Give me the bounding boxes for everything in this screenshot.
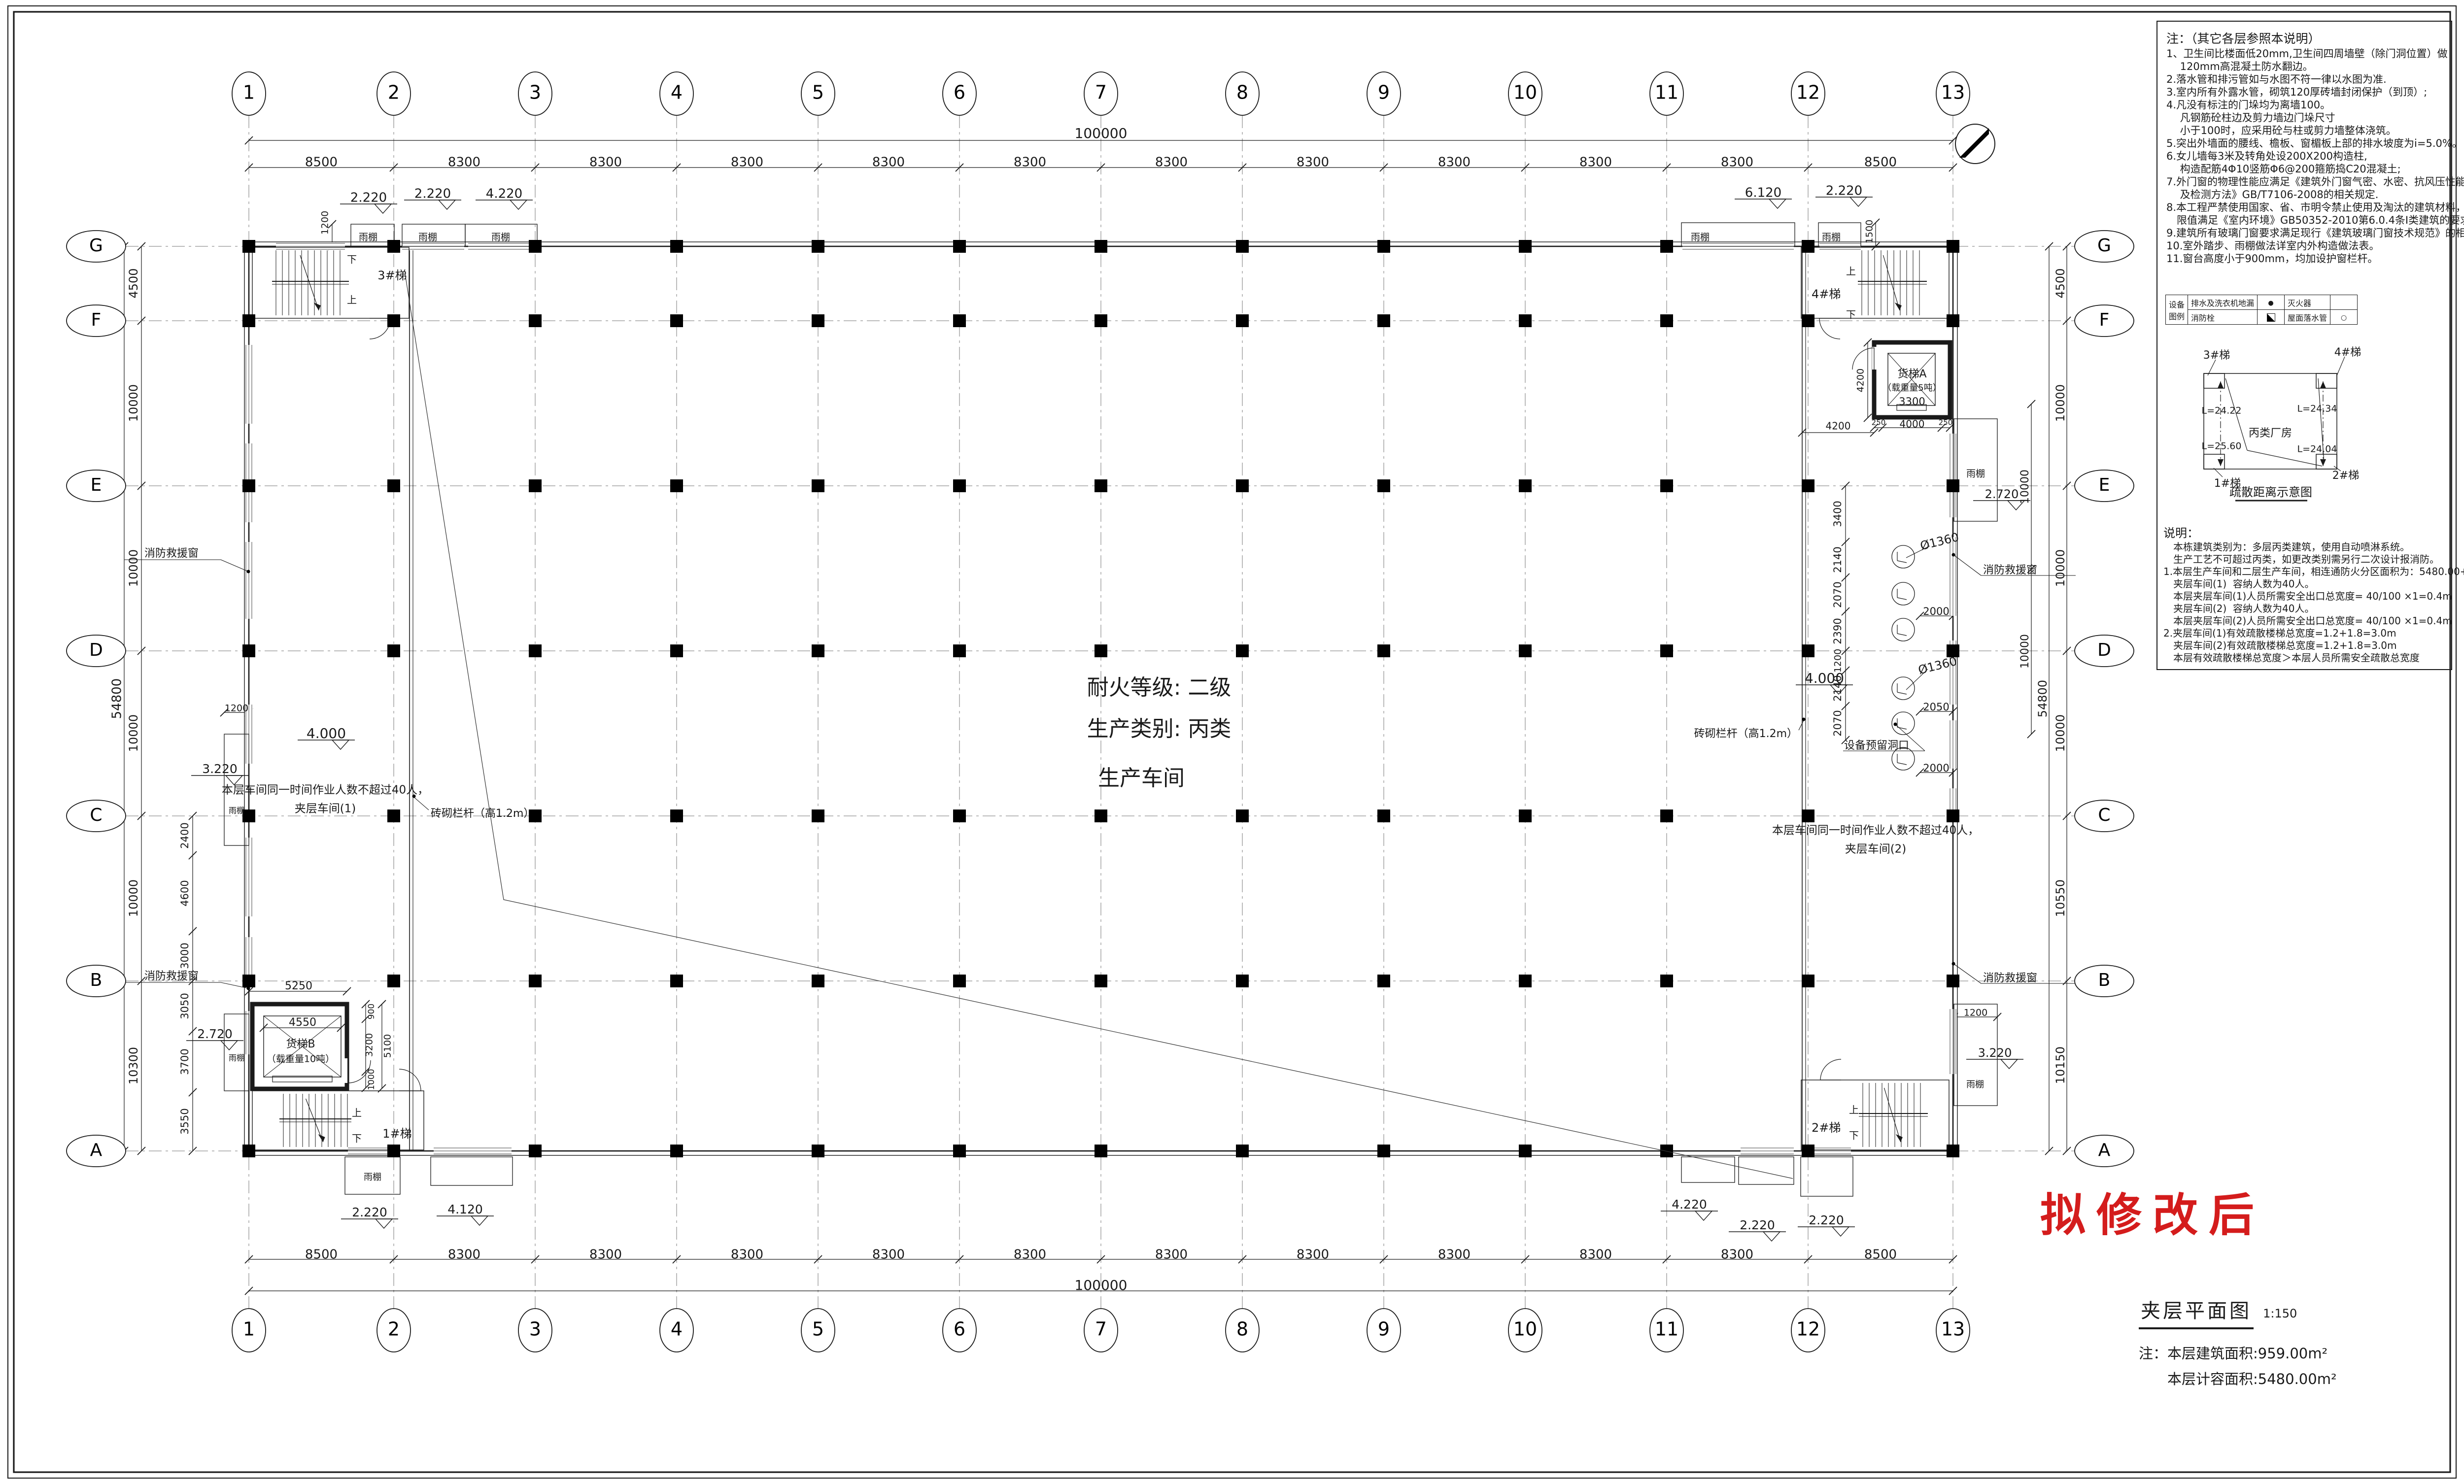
- grid-bubble-label: E: [2099, 475, 2110, 495]
- plan-label: 2070: [1832, 710, 1844, 736]
- floor-plan-canvas: 1122334455667788991010111112121313GGFFEE…: [0, 0, 2464, 1484]
- plan-label: 8300: [731, 155, 763, 170]
- column: [670, 644, 683, 657]
- plan-label: 8300: [1579, 1248, 1612, 1262]
- leader-dot: [247, 987, 250, 990]
- column: [1947, 314, 1959, 327]
- column: [953, 240, 966, 253]
- column: [1660, 975, 1673, 987]
- column: [1802, 1145, 1814, 1157]
- column: [242, 479, 255, 492]
- column: [242, 975, 255, 987]
- column: [670, 975, 683, 987]
- column: [387, 975, 400, 987]
- plan-label: 消防救援窗: [144, 970, 199, 982]
- column: [1377, 314, 1390, 327]
- plan-label: 3.220: [202, 762, 238, 776]
- plan-label: 6.120: [1745, 186, 1781, 201]
- column: [1802, 240, 1814, 253]
- level-icon: [1832, 1227, 1849, 1236]
- plan-label: 900: [367, 1004, 376, 1019]
- plan-rect: [1801, 1080, 1949, 1150]
- cad-sheet: 1122334455667788991010111112121313GGFFEE…: [0, 0, 2464, 1484]
- description-title: 说明：: [2163, 525, 2447, 541]
- column: [1095, 975, 1107, 987]
- plan-label: 4.000: [1805, 670, 1844, 686]
- grid-bubble-label: 9: [1378, 82, 1390, 103]
- plan-label: 8300: [1721, 155, 1753, 170]
- grid-bubble-label: 6: [954, 1318, 965, 1340]
- plan-line: [300, 255, 319, 310]
- plan-label: 8300: [448, 1248, 480, 1262]
- column: [1095, 809, 1107, 822]
- plan-label: 8300: [1155, 155, 1188, 170]
- plan-label: 10000: [2019, 634, 2031, 669]
- plan-label: 8300: [1721, 1248, 1753, 1262]
- door-arc: [1820, 1059, 1841, 1080]
- plan-label: 4500: [127, 268, 140, 298]
- plan-label: 4500: [2053, 268, 2067, 298]
- stair-arrow-icon: [314, 303, 321, 310]
- leader-dot: [1952, 962, 1955, 966]
- column: [1519, 975, 1532, 987]
- plan-label: 雨棚: [491, 232, 510, 243]
- door-arc: [1852, 348, 1874, 370]
- plan-label: 8300: [1579, 155, 1612, 170]
- column: [953, 809, 966, 822]
- note-line: 凡钢筋砼柱边及剪力墙边门垛尺寸: [2166, 111, 2446, 124]
- plan-label: 10000: [2053, 384, 2067, 422]
- plan-label: 8300: [872, 1248, 905, 1262]
- leader-dot: [1952, 553, 1955, 557]
- plan-label: 4.220: [486, 187, 522, 202]
- column: [953, 314, 966, 327]
- plan-label: 8300: [1438, 1248, 1471, 1262]
- column: [1236, 1145, 1249, 1157]
- plan-label: 货梯B: [286, 1038, 315, 1050]
- stair-arrow-icon: [1895, 303, 1902, 310]
- desc-line: 夹层车间(2) 容纳人数为40人。: [2163, 603, 2447, 615]
- plan-label: 1500: [1864, 220, 1875, 243]
- column: [387, 479, 400, 492]
- column: [670, 240, 683, 253]
- plan-label: 雨棚: [229, 1053, 244, 1063]
- column: [1377, 240, 1390, 253]
- column: [1802, 975, 1814, 987]
- plan-label: 本层车间同一时间作业人数不超过40人，: [222, 784, 429, 797]
- column: [242, 1145, 255, 1157]
- note-line: 120mm高混凝土防水翻边。: [2166, 60, 2446, 73]
- plan-label: 5100: [382, 1034, 393, 1058]
- column: [1095, 314, 1107, 327]
- plan-label: 100000: [1075, 1277, 1128, 1293]
- note-line: 8.本工程严禁使用国家、省、市明令禁止使用及淘汰的建筑材料，室内污染: [2166, 201, 2446, 214]
- leader-dot: [247, 570, 250, 573]
- plan-label: 10550: [2053, 879, 2067, 917]
- plan-label: 10000: [2053, 714, 2067, 752]
- plan-label: 8300: [1438, 155, 1471, 170]
- grid-bubble-label: 3: [529, 82, 541, 103]
- grid-bubble-label: 2: [388, 82, 400, 103]
- plan-label: 2.220: [352, 1205, 387, 1219]
- grid-bubble-label: B: [90, 970, 103, 990]
- grid-bubble-label: 5: [812, 82, 824, 103]
- column: [1519, 314, 1532, 327]
- plan-line: [1897, 692, 1907, 694]
- door-arc: [370, 318, 390, 339]
- plan-label: 4.120: [447, 1202, 483, 1216]
- column: [1236, 240, 1249, 253]
- plan-label: 下: [352, 1133, 362, 1145]
- grid-bubble-label: 7: [1095, 82, 1107, 103]
- leader-dot: [1802, 718, 1806, 721]
- desc-line: 2.夹层车间(1)有效疏散楼梯总宽度=1.2+1.8=3.0m: [2163, 627, 2447, 640]
- plan-label: 4200: [1826, 420, 1851, 432]
- plan-label: 2.720: [1985, 487, 2019, 501]
- plan-rect: [1801, 1157, 1853, 1196]
- area-note-2: 本层计容面积:5480.00m²: [2167, 1368, 2454, 1388]
- column: [670, 479, 683, 492]
- plan-label: 生产车间: [1098, 766, 1185, 791]
- grid-bubble-label: 10: [1513, 1318, 1537, 1340]
- plan-line: [1897, 763, 1907, 765]
- column: [387, 1145, 400, 1157]
- note-line: 9.建筑所有玻璃门窗要求满足现行《建筑玻璃门窗技术规范》的相关要求。: [2166, 227, 2446, 239]
- plan-label: 上: [1849, 1104, 1859, 1116]
- column: [1802, 479, 1814, 492]
- plan-label: 夹层车间(2): [1845, 843, 1907, 856]
- level-icon: [471, 1216, 488, 1225]
- plan-rect: [1681, 1157, 1735, 1182]
- plan-label: 10000: [2053, 549, 2067, 587]
- plan-label: 3400: [1832, 501, 1844, 527]
- level-icon: [1769, 199, 1786, 208]
- column: [529, 314, 542, 327]
- plan-label: 8300: [731, 1248, 763, 1262]
- plan-label: 3050: [179, 993, 191, 1019]
- legend-cell: 屋面落水管: [2285, 310, 2330, 325]
- plan-label: 2.220: [414, 187, 451, 202]
- downpipe-icon: ○: [2341, 314, 2347, 322]
- level-icon: [439, 200, 455, 209]
- elevator-door-gap: [343, 1058, 347, 1083]
- plan-label: 8500: [305, 1248, 338, 1262]
- grid-bubble-label: 8: [1236, 82, 1248, 103]
- plan-label: 3#梯: [377, 269, 407, 282]
- plan-label: 2140: [1832, 546, 1844, 573]
- legend-cell: 灭火器: [2285, 295, 2330, 310]
- column: [529, 644, 542, 657]
- column: [1519, 809, 1532, 822]
- plan-line: [1799, 720, 1804, 730]
- plan-label: 100000: [1075, 125, 1128, 141]
- plan-label: 货梯A: [1897, 368, 1926, 380]
- column: [1236, 809, 1249, 822]
- column: [1519, 479, 1532, 492]
- plan-label: 4#梯: [1812, 287, 1841, 301]
- plan-label: 1200: [320, 211, 331, 235]
- plan-label: 2.720: [197, 1027, 233, 1041]
- plan-label: 3.220: [1978, 1046, 2012, 1060]
- column: [1236, 314, 1249, 327]
- plan-label: 8300: [448, 155, 480, 170]
- plan-label: 4.000: [307, 725, 346, 742]
- plan-label: 上: [347, 294, 357, 306]
- level-icon: [510, 200, 527, 209]
- column: [1660, 479, 1673, 492]
- column: [1377, 644, 1390, 657]
- plan-label: 2070: [1832, 581, 1844, 607]
- plan-label: 雨棚: [1822, 232, 1841, 243]
- desc-line: 本层有效疏散楼梯总宽度＞本层人员所需安全疏散总宽度: [2163, 652, 2447, 664]
- plan-label: 设备预留洞口: [1844, 740, 1909, 752]
- column: [953, 1145, 966, 1157]
- grid-bubble-label: G: [89, 236, 103, 256]
- column: [812, 479, 824, 492]
- plan-label: 54800: [110, 678, 125, 719]
- column: [812, 240, 824, 253]
- desc-line: 本层夹层车间(1)人员所需安全出口总宽度= 40/100 ×1=0.4m: [2163, 590, 2447, 603]
- reserved-opening-icon: [1892, 618, 1915, 641]
- plan-label: 上: [352, 1107, 362, 1119]
- plan-rect: [14, 12, 2450, 1472]
- plan-label: 1200: [225, 703, 248, 714]
- plan-label: 8300: [1297, 155, 1329, 170]
- grid-bubble-label: 1: [243, 82, 255, 103]
- plan-label: 2000: [1923, 606, 1949, 617]
- description-list: 本栋建筑类别为：多层丙类建筑，使用自动喷淋系统。 生产工艺不可超过丙类，如更改类…: [2163, 541, 2447, 664]
- plan-label: 雨棚: [359, 232, 377, 243]
- grid-bubble-label: 4: [671, 1318, 683, 1340]
- grid-bubble-label: 3: [529, 1318, 541, 1340]
- plan-line: [414, 797, 429, 810]
- level-icon: [376, 1219, 392, 1228]
- plan-label: 4550: [289, 1016, 316, 1029]
- reserved-opening-icon: [1892, 677, 1915, 700]
- column: [1377, 975, 1390, 987]
- plan-line: [1884, 1088, 1900, 1142]
- grid-bubble-label: B: [2098, 970, 2111, 990]
- grid-bubble-label: 11: [1655, 82, 1678, 103]
- column: [670, 809, 683, 822]
- column: [1095, 240, 1107, 253]
- plan-label: 250: [1872, 418, 1886, 427]
- note-line: 4.凡没有标注的门垛均为离墙100。: [2166, 99, 2446, 111]
- plan-line: [1897, 561, 1907, 563]
- column: [387, 314, 400, 327]
- sheet-scale: 1:150: [2263, 1307, 2297, 1320]
- legend-cell: 排水及洗衣机地漏: [2188, 295, 2258, 310]
- description-block: 说明： 本栋建筑类别为：多层丙类建筑，使用自动喷淋系统。 生产工艺不可超过丙类，…: [2163, 525, 2447, 664]
- plan-label: 2.220: [1826, 184, 1862, 199]
- column: [812, 975, 824, 987]
- plan-label: 2390: [1832, 618, 1844, 644]
- grid-bubble-label: C: [2098, 805, 2110, 825]
- plan-label: 雨棚: [1966, 1079, 1984, 1090]
- plan-label: 10300: [127, 1047, 140, 1084]
- plan-label: 10000: [127, 549, 140, 587]
- reserved-opening-icon: [1892, 545, 1915, 568]
- plan-label: 8300: [589, 1248, 622, 1262]
- plan-label: 夹层车间(1): [295, 803, 356, 815]
- column: [529, 975, 542, 987]
- red-stamp: 拟修改后: [2040, 1179, 2265, 1244]
- plan-line: [1897, 634, 1907, 636]
- level-icon: [1763, 1232, 1780, 1241]
- plan-label: 3300: [1899, 396, 1925, 407]
- plan-label: 消防救援窗: [1983, 972, 2037, 984]
- plan-rect: [1739, 1157, 1794, 1184]
- plan-label: 雨棚: [418, 232, 437, 243]
- grid-bubble-label: 10: [1513, 82, 1537, 103]
- column: [1519, 1145, 1532, 1157]
- level-icon: [1695, 1211, 1712, 1220]
- column: [812, 809, 824, 822]
- column: [953, 644, 966, 657]
- column: [242, 240, 255, 253]
- plan-label: 2400: [179, 822, 191, 848]
- grid-bubble-label: 13: [1941, 1318, 1965, 1340]
- note-line: 2.落水管和排污管如与水图不符一律以水图为准.: [2166, 73, 2446, 86]
- plan-label: 下: [1849, 1130, 1859, 1142]
- plan-label: 5250: [285, 980, 312, 992]
- door-arc: [1819, 318, 1840, 339]
- note-line: 小于100时，应采用砼与柱或剪力墙整体浇筑。: [2166, 124, 2446, 137]
- plan-label: 10000: [2019, 470, 2031, 504]
- note-line: 限值满足《室内环境》GB50352-2010第6.0.4条I类建筑的要求.: [2166, 214, 2446, 227]
- desc-line: 本栋建筑类别为：多层丙类建筑，使用自动喷淋系统。: [2163, 541, 2447, 553]
- note-line: 5.突出外墙面的腰线、檐板、窗楣板上部的排水坡度为i=5.0%。: [2166, 137, 2446, 150]
- fire-hydrant-icon: [2267, 313, 2275, 322]
- plan-label: 3700: [179, 1048, 191, 1075]
- column: [953, 975, 966, 987]
- column: [1377, 1145, 1390, 1157]
- column: [1095, 644, 1107, 657]
- compass-needle-icon: [1959, 128, 1989, 158]
- note-line: 1、卫生间比楼面低20mm,卫生间四周墙壁（除门洞位置）做: [2166, 47, 2446, 60]
- grid-bubble-label: 7: [1095, 1318, 1107, 1340]
- note-line: 7.外门窗的物理性能应满足《建筑外门窗气密、水密、抗风压性能分级: [2166, 175, 2446, 188]
- plan-label: 本层车间同一时间作业人数不超过40人，: [1772, 824, 1979, 837]
- floor-drain-icon: ●: [2268, 300, 2273, 307]
- plan-label: 消防救援窗: [1983, 564, 2037, 576]
- plan-label: 10000: [127, 714, 140, 752]
- column: [1947, 975, 1959, 987]
- plan-label: 8300: [1155, 1248, 1188, 1262]
- plan-label: 雨棚: [1966, 469, 1985, 479]
- plan-label: 10000: [127, 384, 140, 422]
- column: [1947, 240, 1959, 253]
- column: [1802, 809, 1814, 822]
- level-icon: [221, 1041, 238, 1050]
- level-icon: [1850, 197, 1867, 206]
- grid-bubble-label: 12: [1796, 1318, 1820, 1340]
- grid-bubble-label: 5: [812, 1318, 824, 1340]
- plan-label: 2000: [1923, 762, 1949, 774]
- column: [1519, 644, 1532, 657]
- level-icon: [375, 204, 391, 213]
- grid-bubble-label: A: [90, 1140, 103, 1160]
- plan-label: 2.220: [1740, 1218, 1775, 1232]
- plan-label: 2050: [1923, 701, 1949, 713]
- plan-rect: [252, 1091, 424, 1150]
- stair-arrow-icon: [1896, 1134, 1903, 1142]
- column: [1947, 809, 1959, 822]
- plan-label: 雨棚: [1691, 232, 1710, 243]
- legend-table: 设备 图例 排水及洗衣机地漏 ● 灭火器 消防栓 屋面落水管: [2165, 295, 2358, 325]
- plan-label: 4600: [179, 880, 191, 906]
- column: [1236, 479, 1249, 492]
- plan-label: 8500: [1864, 1248, 1897, 1262]
- area-note-1: 注：本层建筑面积:959.00m²: [2139, 1342, 2454, 1363]
- column: [529, 479, 542, 492]
- plan-label: 2.220: [1809, 1213, 1844, 1227]
- note-line: 及检测方法》GB/T7106-2008的相关规定.: [2166, 188, 2446, 201]
- legend-header: 设备: [2169, 300, 2185, 309]
- column: [529, 1145, 542, 1157]
- grid-bubble-label: 13: [1941, 82, 1965, 103]
- plan-label: 8300: [1297, 1248, 1329, 1262]
- note-line: 11.窗台高度小于900mm，均加设护窗栏杆。: [2166, 252, 2446, 265]
- plan-label: 3000: [179, 943, 191, 969]
- plan-label: 4.220: [1672, 1197, 1707, 1212]
- title-block: 夹层平面图 1:150 注：本层建筑面积:959.00m² 本层计容面积:548…: [2139, 1295, 2454, 1388]
- desc-line: 1.本层生产车间和二层生产车间，相连通防火分区面积为：5480.00+959.0…: [2163, 566, 2447, 578]
- plan-label: 1000: [367, 1069, 376, 1090]
- plan-label: 54800: [2036, 680, 2050, 717]
- grid-bubble-label: D: [2097, 640, 2111, 660]
- grid-bubble-label: 8: [1236, 1318, 1248, 1340]
- grid-bubble-label: F: [2099, 310, 2110, 330]
- plan-label: 3550: [179, 1108, 191, 1134]
- plan-label: 消防救援窗: [144, 547, 199, 560]
- column: [242, 644, 255, 657]
- legend-cell: 消防栓: [2188, 310, 2258, 325]
- column: [387, 644, 400, 657]
- plan-label: 雨棚: [364, 1172, 381, 1182]
- plan-line: [1897, 598, 1907, 600]
- column: [812, 1145, 824, 1157]
- plan-label: 2#梯: [1812, 1121, 1841, 1135]
- grid-bubble-label: 4: [671, 82, 683, 103]
- column: [1095, 1145, 1107, 1157]
- column: [1802, 314, 1814, 327]
- plan-label: 下: [1846, 309, 1856, 321]
- column: [1377, 479, 1390, 492]
- desc-line: 夹层车间(2)有效疏散楼梯总宽度=1.2+1.8=3.0m: [2163, 640, 2447, 652]
- plan-label: 下: [347, 254, 357, 266]
- leader-dot: [1894, 723, 1897, 726]
- plan-label: 生产类别: 丙类: [1087, 716, 1232, 742]
- plan-label: 砖砌栏杆（高1.2m）: [1694, 728, 1798, 740]
- door-arc: [399, 1069, 421, 1091]
- reserved-opening-icon: [1892, 582, 1915, 605]
- grid-bubble-label: 2: [388, 1318, 400, 1340]
- plan-label: 1200: [1833, 649, 1844, 673]
- plan-label: 4200: [1855, 369, 1866, 392]
- desc-line: 生产工艺不可超过丙类，如更改类别需另行二次设计报消防。: [2163, 553, 2447, 566]
- plan-label: 砖砌栏杆（高1.2m）: [431, 808, 534, 820]
- note-line: 构造配筋4Φ10竖筋Φ6@200箍筋捣C20混凝土;: [2166, 163, 2446, 175]
- plan-rect: [431, 1157, 513, 1185]
- note-line: 6.女儿墙每3米及转角处设200X200构造柱,: [2166, 150, 2446, 163]
- column: [670, 1145, 683, 1157]
- column: [953, 479, 966, 492]
- column: [1660, 644, 1673, 657]
- grid-bubble-label: 12: [1796, 82, 1820, 103]
- plan-label: 10150: [2053, 1046, 2067, 1084]
- column: [1236, 644, 1249, 657]
